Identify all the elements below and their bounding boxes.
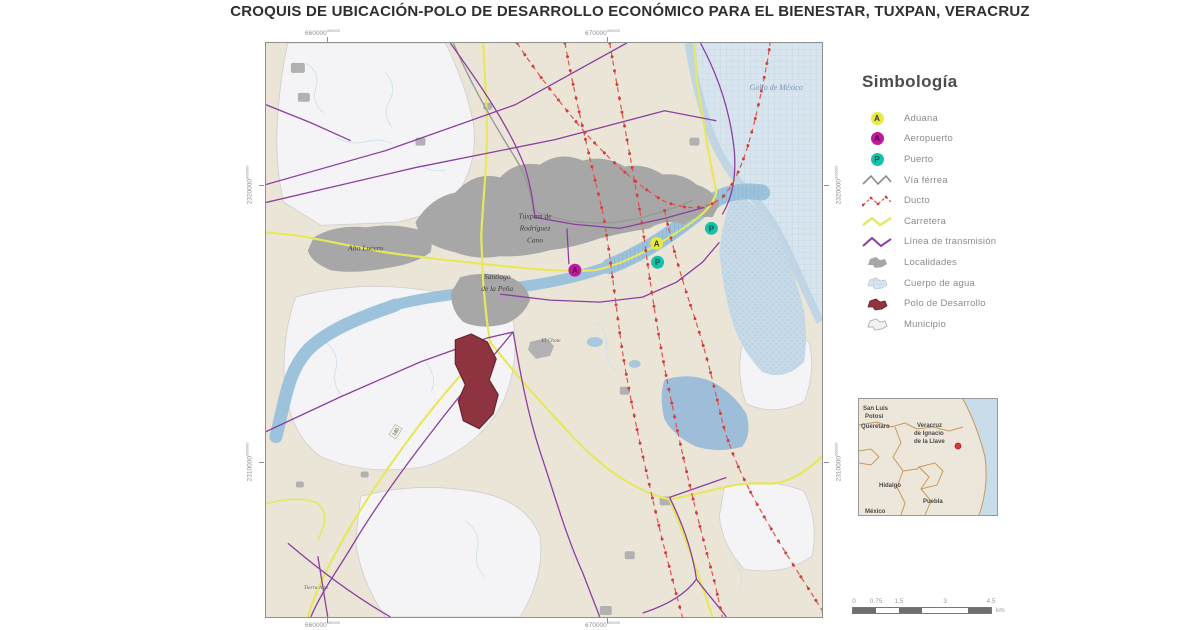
grid-tick <box>327 37 328 42</box>
legend-item-puerto: P Puerto <box>862 149 1062 170</box>
legend-item-cuerpo-de-agua: Cuerpo de agua <box>862 273 1062 294</box>
railway-line-icon <box>862 173 892 187</box>
legend-item-municipio: Municipio <box>862 314 1062 335</box>
legend-item-aeropuerto: A Aeropuerto <box>862 129 1062 150</box>
svg-text:de la Peña: de la Peña <box>481 284 513 293</box>
svg-text:Tierra Alta: Tierra Alta <box>304 585 328 591</box>
aduana-point-icon: A <box>871 112 884 125</box>
svg-text:Hidalgo: Hidalgo <box>879 483 901 489</box>
svg-text:Puebla: Puebla <box>923 499 943 505</box>
inset-locator-map: San Luis Potosí Querétaro Veracruz de Ig… <box>858 398 998 516</box>
road-line-icon <box>862 214 892 228</box>
legend-item-ducto: Ducto <box>862 190 1062 211</box>
svg-text:México: México <box>865 509 886 515</box>
map-canvas: 180 A A P P Golfo de México Túxpam de Ro… <box>266 43 822 617</box>
svg-text:Alto Lucero: Alto Lucero <box>347 243 383 252</box>
svg-text:A: A <box>654 239 660 248</box>
legend-item-localidades: Localidades <box>862 252 1062 273</box>
svg-text:Veracruz: Veracruz <box>917 423 942 429</box>
water-area-icon <box>862 275 892 291</box>
legend-item-aduana: A Aduana <box>862 108 1062 129</box>
coord-label-left-2: 2310000000000 <box>244 443 253 482</box>
grid-tick <box>824 185 829 186</box>
coord-label-left-1: 2320000000000 <box>244 166 253 205</box>
page: CROQUIS DE UBICACIÓN-POLO DE DESARROLLO … <box>0 0 1200 630</box>
grid-tick <box>259 185 264 186</box>
legend-title: Simbología <box>862 72 1062 92</box>
svg-text:Túxpam de: Túxpam de <box>519 211 553 220</box>
svg-text:de la Llave: de la Llave <box>914 439 945 445</box>
coord-label-bottom-2: 670000000000 <box>585 620 620 629</box>
grid-tick <box>607 37 608 42</box>
legend-panel: Simbología A Aduana A Aeropuerto P Puert… <box>862 72 1062 335</box>
main-map: 180 A A P P Golfo de México Túxpam de Ro… <box>265 42 823 618</box>
polo-area-icon <box>862 296 892 312</box>
puerto-point-icon: P <box>871 153 884 166</box>
coord-label-bottom-1: 660000000000 <box>305 620 340 629</box>
sea-label: Golfo de México <box>750 83 803 92</box>
svg-text:A: A <box>572 266 578 275</box>
grid-tick <box>824 462 829 463</box>
svg-text:P: P <box>655 258 661 267</box>
localities-area-icon <box>862 254 892 270</box>
scale-bar-ticks: 0 0.75 1.5 3 4.5 <box>852 598 1012 607</box>
legend-item-via-ferrea: Vía férrea <box>862 170 1062 191</box>
svg-text:Cano: Cano <box>527 235 543 244</box>
pipeline-line-icon <box>862 194 892 208</box>
scale-bar-segments <box>852 607 992 614</box>
coord-label-right-2: 2310000000000 <box>833 443 842 482</box>
scale-bar-unit: km <box>996 607 1005 614</box>
page-title: CROQUIS DE UBICACIÓN-POLO DE DESARROLLO … <box>160 3 1100 20</box>
coord-label-right-1: 2320000000000 <box>833 166 842 205</box>
pond <box>629 360 641 368</box>
svg-text:Potosí: Potosí <box>865 414 884 420</box>
svg-text:Rodríguez: Rodríguez <box>519 223 551 232</box>
svg-text:San Luis: San Luis <box>863 406 889 412</box>
inset-location-dot <box>955 443 961 449</box>
svg-text:Santiago: Santiago <box>484 272 511 281</box>
grid-tick <box>259 462 264 463</box>
legend-item-carretera: Carretera <box>862 211 1062 232</box>
transmission-line-icon <box>862 235 892 249</box>
inset-canvas: San Luis Potosí Querétaro Veracruz de Ig… <box>859 399 997 515</box>
municipio-area-icon <box>862 316 892 332</box>
legend-item-linea-transmision: Línea de transmisión <box>862 232 1062 253</box>
aeropuerto-point-icon: A <box>871 132 884 145</box>
svg-text:Querétaro: Querétaro <box>861 424 890 430</box>
legend-item-polo-de-desarrollo: Polo de Desarrollo <box>862 293 1062 314</box>
coord-label-top-1: 660000000000 <box>305 28 340 37</box>
svg-text:P: P <box>709 224 715 233</box>
scale-bar: 0 0.75 1.5 3 4.5 km <box>852 598 1012 614</box>
coord-label-top-2: 670000000000 <box>585 28 620 37</box>
pond <box>587 337 603 347</box>
svg-text:de Ignacio: de Ignacio <box>914 431 944 437</box>
svg-text:El Chote: El Chote <box>540 338 561 344</box>
